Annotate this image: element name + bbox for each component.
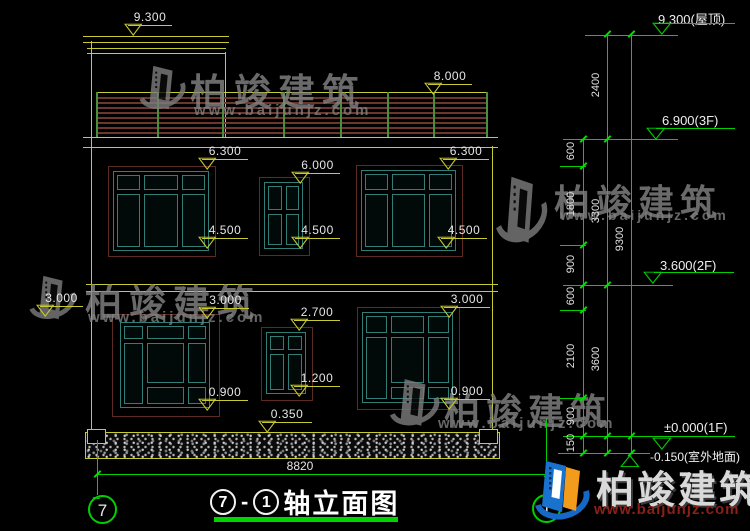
window-2f-left	[113, 171, 209, 251]
window-pane	[147, 343, 184, 383]
level-triangle-icon: ▽	[440, 398, 459, 410]
window-pane	[124, 326, 143, 339]
level-triangle-icon: ▽	[439, 158, 458, 170]
railing-post	[486, 92, 488, 137]
dim-chain-detail-line	[583, 139, 584, 453]
window-pane	[288, 336, 302, 350]
level-flag-2f: 3.600(2F)	[660, 258, 716, 273]
level-triangle-icon: ▽	[198, 158, 217, 170]
level-triangle-icon: ▽	[36, 305, 55, 317]
level-flag-line	[654, 272, 734, 273]
window-pane	[147, 326, 184, 339]
footer-url-text: www.baijunjz.com	[594, 501, 739, 518]
level-flag-3f: 6.900(3F)	[662, 113, 718, 128]
drawing-title: 7 - 1 轴立面图	[210, 482, 399, 521]
watermark-url: www.baijunjz.com	[88, 309, 265, 326]
level-triangle-icon: ▽	[198, 307, 217, 319]
dim-label: 3300	[590, 189, 602, 233]
elevation-marker-1f-left-top: 3.000 ▽	[202, 294, 249, 309]
footer-logo	[530, 452, 594, 531]
elevation-marker-2f-right-top: 6.300 ▽	[443, 145, 489, 160]
dim-chain-overall-line	[631, 34, 632, 453]
overall-width-dim-line	[97, 474, 547, 475]
dim-label: 2100	[565, 334, 577, 378]
level-triangle-icon: ▽	[198, 399, 217, 411]
elevation-marker-1f-right-sill: 0.900 ▽	[444, 385, 490, 400]
elevation-marker-railing: 8.000 ▽	[428, 70, 472, 85]
axis-break-icon: ~	[92, 490, 101, 507]
left-wall-line	[91, 41, 92, 432]
elevation-marker-1f-mid-top: 2.700 ▽	[294, 306, 340, 321]
level-flag-1f: ±0.000(1F)	[664, 420, 728, 435]
watermark-logo-icon	[490, 168, 550, 256]
window-pane	[182, 175, 205, 190]
elevation-drawing-canvas: 9.300 ▽ 8.000 ▽ 6.300 ▽ 6.000 ▽ 6.300 ▽ …	[0, 0, 750, 531]
window-1f-left	[120, 322, 210, 408]
level-triangle-icon: ▽	[652, 23, 672, 35]
railing-post	[387, 92, 389, 137]
elevation-marker-2f-right-sill: 4.500 ▽	[441, 224, 487, 239]
watermark	[490, 168, 550, 261]
watermark-url: www.baijunjz.com	[560, 207, 729, 223]
level-triangle-icon: ▽	[291, 172, 310, 184]
elevation-marker-2f-left-sill: 4.500 ▽	[202, 224, 248, 239]
dim-label: 600	[565, 274, 577, 318]
elevation-marker-2f-left-top: 6.300 ▽	[202, 145, 248, 160]
bulkhead-roof-slab	[83, 36, 229, 43]
bulkhead-soffit-line	[87, 48, 226, 54]
window-pane	[429, 174, 452, 190]
elevation-marker-roof: 9.300 ▽	[128, 11, 172, 26]
railing-post	[96, 92, 98, 137]
axis-line-7	[97, 440, 98, 495]
elevation-marker-plinth: 0.350 ▽	[262, 408, 312, 423]
window-pane	[124, 343, 143, 404]
watermark	[384, 372, 442, 441]
window-pane	[365, 194, 388, 247]
window-pane	[270, 354, 284, 390]
watermark-url: www.baijunjz.com	[438, 415, 615, 432]
brand-logo-icon	[530, 452, 594, 528]
dim-label: 1800	[565, 182, 577, 226]
level-triangle-icon: ▽	[424, 83, 443, 95]
elevation-marker-wall-left: 3.000 ▽	[40, 292, 83, 307]
level-line-1f	[563, 436, 735, 437]
window-pane	[392, 194, 426, 247]
overall-width-dim-text: 8820	[275, 459, 325, 473]
title-axis-circle-left: 7	[210, 489, 236, 515]
watermark-logo-icon	[384, 372, 442, 436]
window-pane	[268, 214, 282, 245]
elevation-marker-2f-mid-top: 6.000 ▽	[295, 159, 340, 174]
window-pane	[144, 194, 178, 247]
watermark-logo-icon	[134, 60, 188, 118]
level-triangle-icon: ▽	[124, 24, 143, 36]
window-pane	[391, 316, 423, 333]
watermark	[134, 60, 188, 123]
window-pane	[268, 186, 282, 210]
dim-label: 3600	[590, 337, 602, 381]
dim-label: 600	[565, 129, 577, 173]
level-triangle-icon: ▽	[290, 385, 309, 397]
railing-post	[433, 92, 435, 137]
window-pane	[366, 316, 387, 333]
title-underline	[214, 517, 398, 522]
watermark-url: www.baijunjz.com	[194, 102, 371, 119]
title-text: 轴立面图	[283, 482, 399, 521]
level-triangle-icon: ▽	[646, 128, 666, 140]
window-pane	[188, 343, 207, 383]
level-triangle-icon: ▽	[437, 237, 456, 249]
level-triangle-icon: ▽	[440, 306, 459, 318]
window-pane	[286, 186, 300, 210]
window-pane	[392, 174, 426, 190]
window-pane	[188, 326, 207, 339]
level-triangle-icon: ▽	[258, 421, 277, 433]
window-pane	[270, 336, 284, 350]
dim-chain-floors-line	[607, 34, 608, 453]
window-pane	[365, 174, 388, 190]
window-pane	[144, 175, 178, 190]
level-triangle-icon: ▽	[290, 319, 309, 331]
elevation-marker-2f-mid-sill: 4.500 ▽	[295, 224, 340, 239]
level-triangle-icon: ▽	[198, 237, 217, 249]
title-dash: -	[241, 489, 248, 515]
elevation-marker-1f-right-top: 3.000 ▽	[444, 293, 490, 308]
elevation-marker-1f-mid-sill: 1.200 ▽	[294, 372, 340, 387]
dim-label: 2400	[590, 63, 602, 107]
floor3-slab	[83, 137, 498, 148]
level-flag-line	[656, 128, 735, 129]
elevation-marker-1f-left-sill: 0.900 ▽	[202, 386, 248, 401]
level-triangle-icon: ▽	[643, 272, 663, 284]
level-triangle-icon: ▽	[291, 237, 310, 249]
title-axis-circle-right: 1	[253, 489, 279, 515]
window-pane	[147, 387, 184, 404]
window-pane	[117, 194, 140, 247]
window-pane	[117, 175, 140, 190]
dim-label: 9300	[614, 217, 626, 261]
